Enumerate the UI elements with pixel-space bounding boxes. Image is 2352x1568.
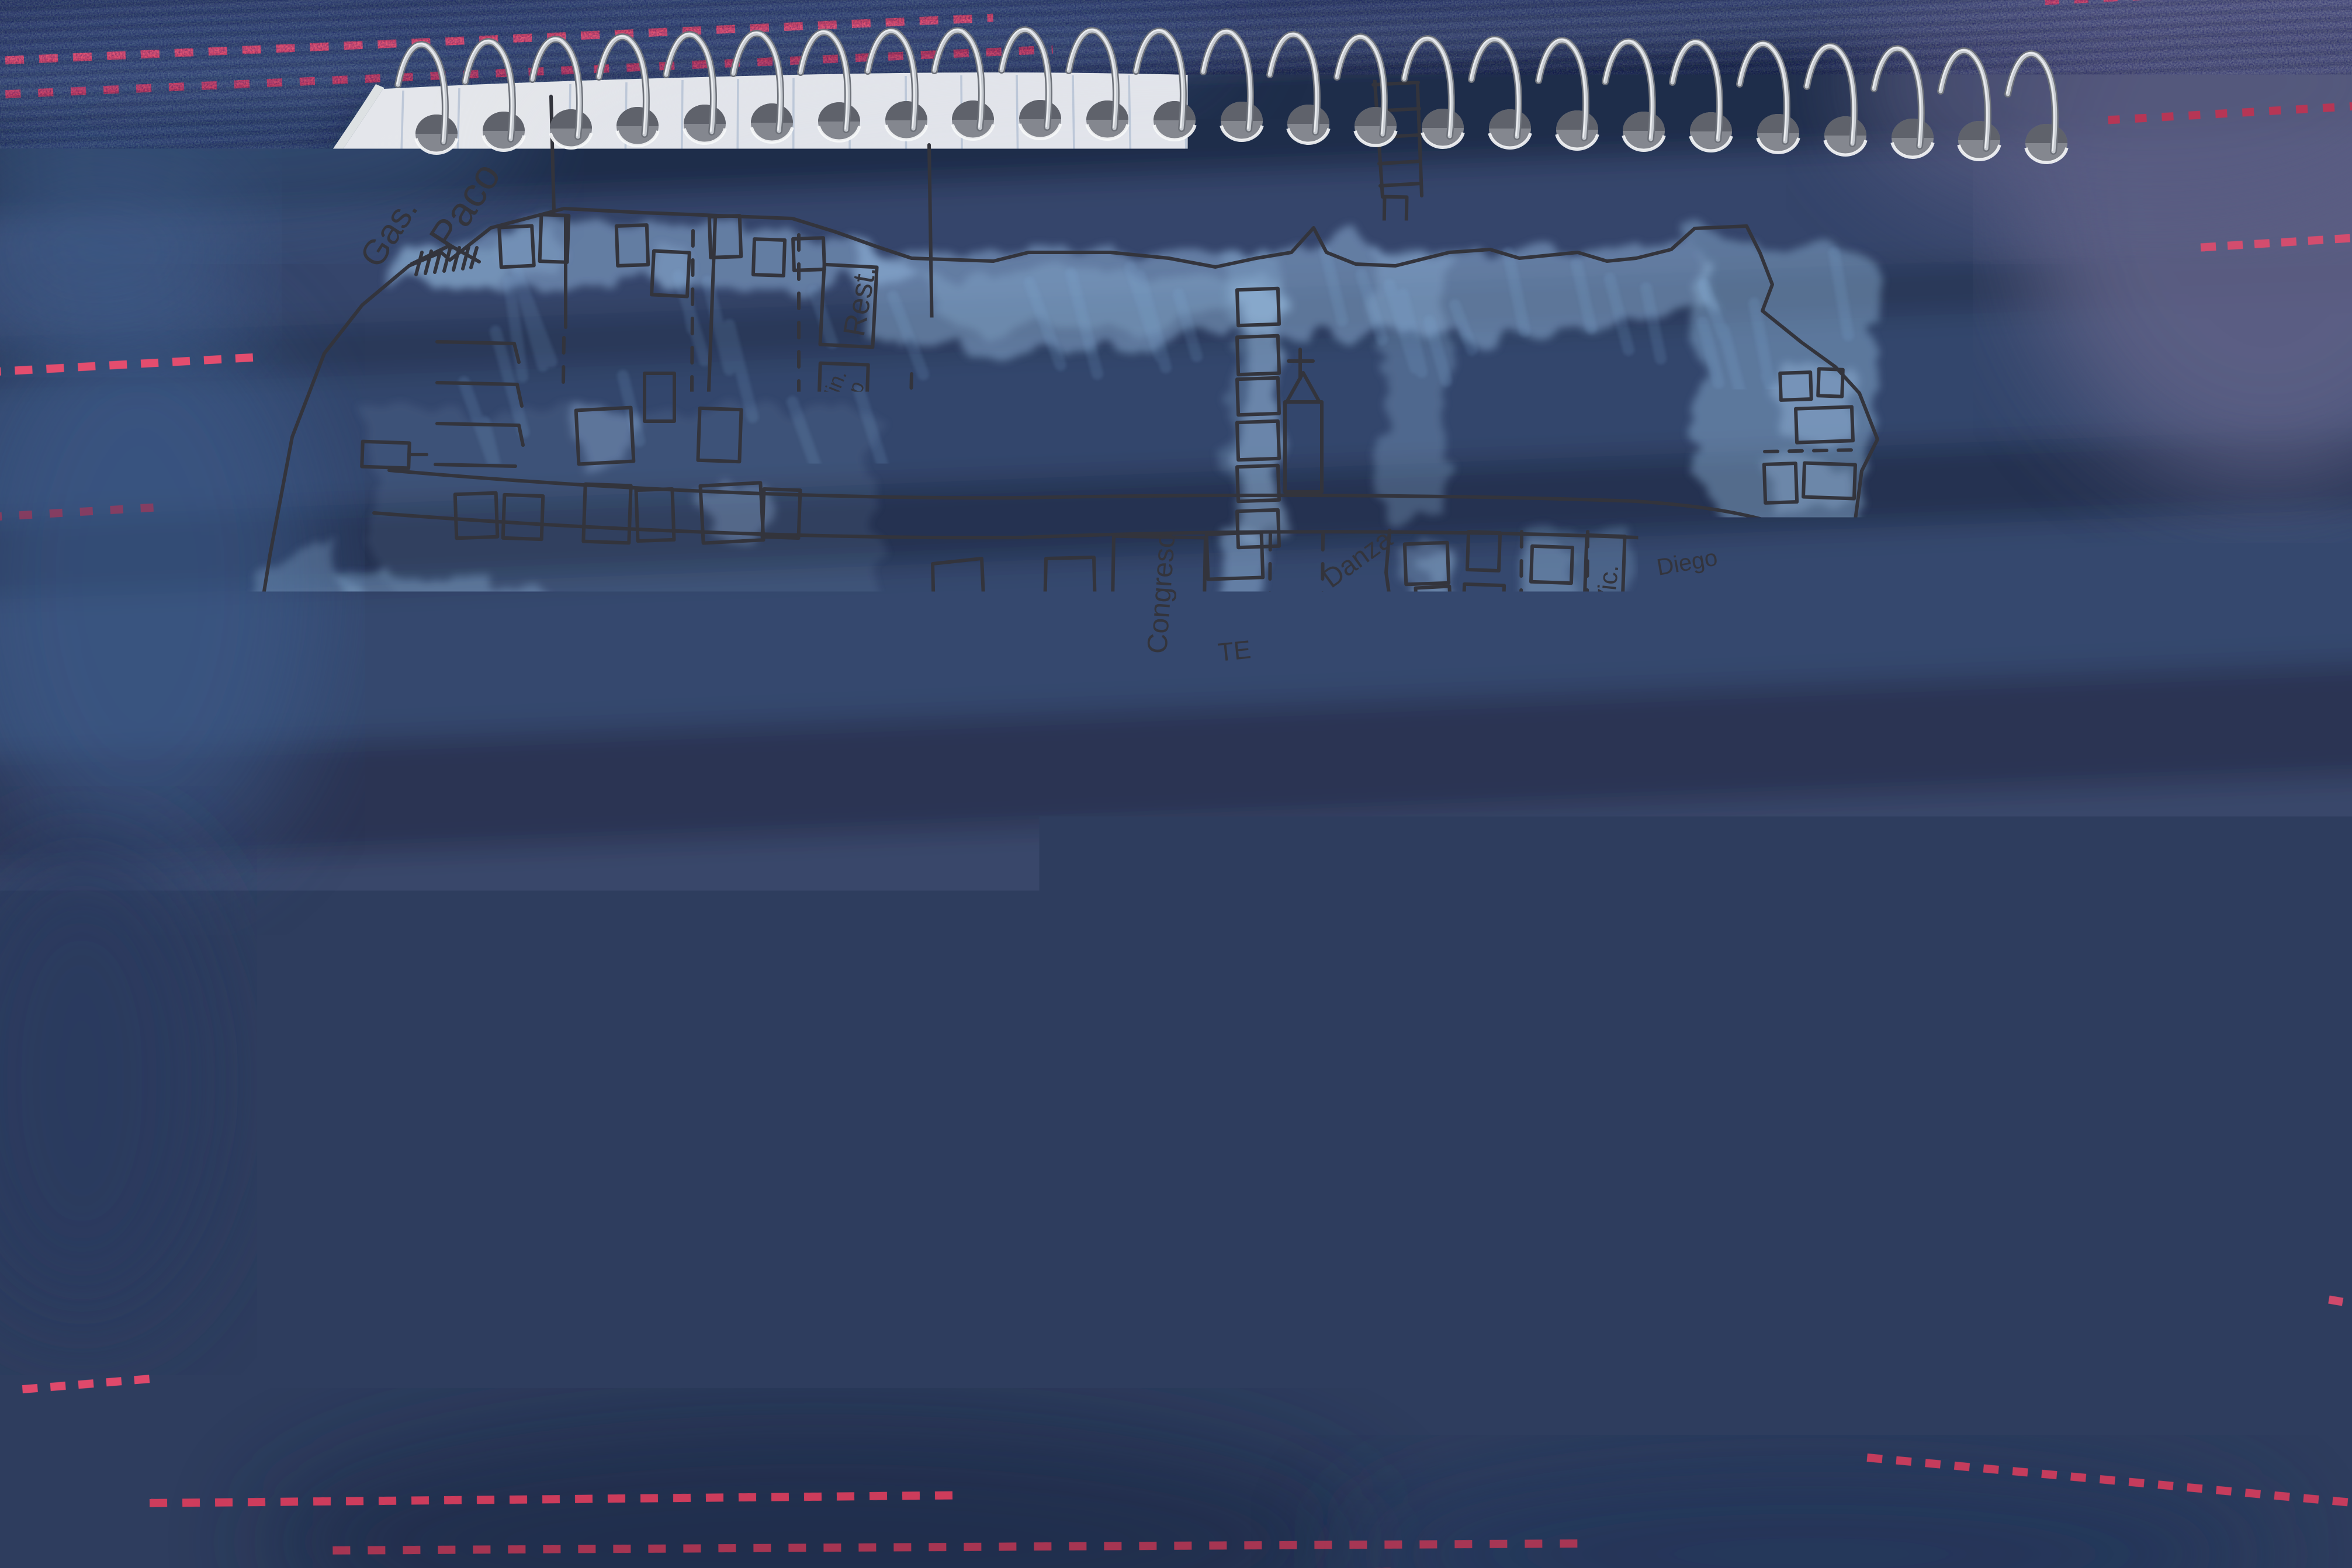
svg-text:Dist.: Dist.: [669, 625, 739, 667]
svg-text:TE: TE: [1217, 635, 1252, 667]
svg-text:Vic.: Vic.: [1591, 563, 1624, 608]
svg-text:ESC.: ESC.: [957, 621, 1040, 663]
